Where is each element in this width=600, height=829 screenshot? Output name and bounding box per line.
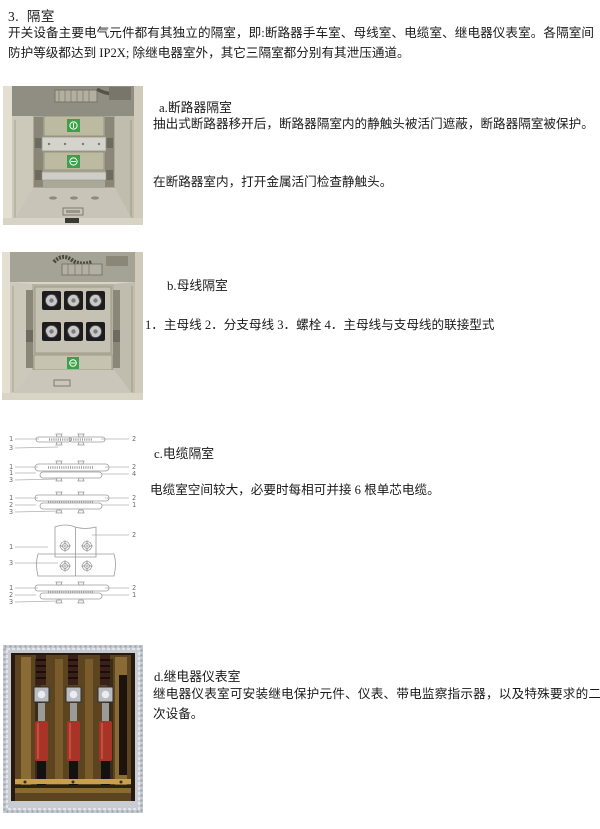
section-a-paragraph-1: 抽出式断路器移开后，断路器隔室内的静触头被活门遮蔽，断路器隔室被保护。 xyxy=(153,115,598,135)
page-title: 3. 隔室 xyxy=(8,5,55,25)
section-d-paragraph: 继电器仪表室可安装继电保护元件、仪表、带电监察指示器，以及特殊要求的二次设备。 xyxy=(153,685,600,724)
compartment-floor xyxy=(12,188,134,223)
relay-compartment-photo xyxy=(3,645,143,813)
section-c-paragraph: 电缆室空间较大，必要时每相可并接 6 根单芯电缆。 xyxy=(150,481,595,501)
breaker-compartment-photo xyxy=(3,86,143,225)
joint-diagram-2: 1 1 3 2 4 xyxy=(9,461,136,484)
intro-paragraph: 开关设备主要电气元件都有其独立的隔室，即:断路器手车室、母线室、电缆室、继电器仪… xyxy=(8,24,594,63)
svg-text:3: 3 xyxy=(9,508,13,516)
insulator-sleeve xyxy=(99,721,112,761)
svg-text:1: 1 xyxy=(132,501,136,509)
right-rail xyxy=(113,290,120,368)
section-b-heading: b.母线隔室 xyxy=(167,275,228,294)
section-a-paragraph-2: 在断路器室内，打开金属活门检查静触头。 xyxy=(153,173,598,193)
svg-text:1: 1 xyxy=(132,591,136,599)
joint-diagram-3: 1 2 3 2 1 xyxy=(9,492,136,516)
svg-text:2: 2 xyxy=(132,531,136,539)
cable-joint-diagrams: 1 3 2 1 1 3 2 4 xyxy=(2,430,142,625)
left-rail xyxy=(26,290,33,368)
section-c-heading: c.电缆隔室 xyxy=(154,443,214,462)
middle-plate xyxy=(42,137,106,151)
lower-shutter xyxy=(44,152,104,170)
insulator-sleeve xyxy=(35,721,48,761)
insulator-sleeve xyxy=(67,721,80,761)
plan-bolt xyxy=(81,560,93,572)
section-a-heading: a.断路器隔室 xyxy=(159,97,232,116)
plan-bolt xyxy=(59,560,71,572)
section-d-heading: d.继电器仪表室 xyxy=(154,666,240,685)
joint-diagram-5: 1 2 3 2 1 xyxy=(9,582,136,606)
svg-text:3: 3 xyxy=(9,476,13,484)
busbar-compartment-photo xyxy=(2,252,143,400)
upper-shutter xyxy=(44,116,104,136)
floor-busbars xyxy=(15,779,131,801)
document-page: 3. 隔室 开关设备主要电气元件都有其独立的隔室，即:断路器手车室、母线室、电缆… xyxy=(0,0,600,829)
svg-text:1: 1 xyxy=(9,543,13,551)
plan-bolt xyxy=(81,540,93,552)
svg-text:1: 1 xyxy=(9,435,13,443)
svg-text:3: 3 xyxy=(9,598,13,606)
svg-text:3: 3 xyxy=(9,444,13,452)
plan-bolt xyxy=(59,540,71,552)
svg-text:4: 4 xyxy=(132,470,136,478)
svg-text:3: 3 xyxy=(9,559,13,567)
section-b-legend: 1．主母线 2．分支母线 3．螺栓 4．主母线与支母线的联接型式 xyxy=(145,316,595,336)
joint-diagram-4: 2 1 3 xyxy=(9,525,136,576)
joint-diagram-1: 1 3 2 xyxy=(9,434,136,452)
svg-text:2: 2 xyxy=(132,435,136,443)
